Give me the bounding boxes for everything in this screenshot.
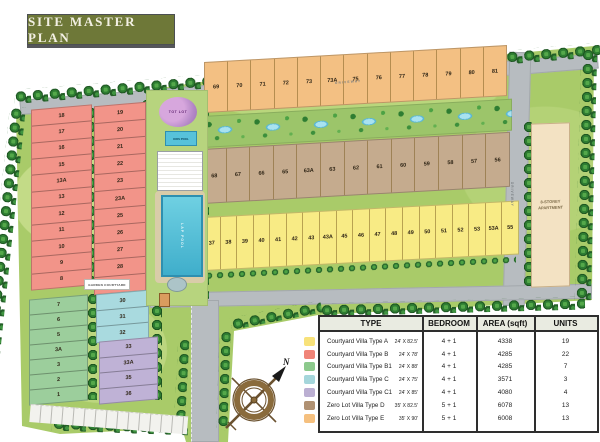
- bedroom-cell: 4 + 1: [422, 338, 476, 345]
- villa-plot-size: 35' X 82.5': [395, 403, 422, 409]
- villa-type-cell: Courtyard Villa Type B1 24' X 88': [320, 363, 422, 370]
- plot-cell: 57: [463, 134, 487, 188]
- plot-cell: 77: [391, 51, 414, 101]
- plot-cell: 61: [368, 139, 392, 193]
- plot-cell: 81: [484, 46, 506, 96]
- plot-cell: 65: [274, 145, 298, 199]
- villa-type-name: Courtyard Villa Type C: [327, 376, 389, 383]
- kids-pool-label: KIDS POOL: [173, 137, 188, 141]
- villa-type-name: Zero Lot Villa Type E: [327, 415, 384, 422]
- apartment-building: 8-STOREY APARTMENT: [531, 122, 570, 287]
- plot-column-courtyard-type-c: 303132: [96, 290, 149, 344]
- plot-cell: 72: [275, 58, 298, 108]
- villa-type-name: Courtyard Villa Type B1: [327, 363, 392, 370]
- villa-plot-size: 24' X 75': [399, 377, 422, 383]
- plot-cell: 63A: [297, 143, 321, 197]
- plot-cell: 47: [370, 208, 387, 261]
- plot-cell: 49: [403, 207, 420, 260]
- legend-swatch-slot: [303, 412, 316, 425]
- villa-plot-size: 24' X 88': [399, 364, 422, 370]
- plot-cell: 69: [205, 62, 228, 112]
- villa-plot-size: 24' X 78': [399, 352, 422, 358]
- villa-type-cell: Courtyard Villa Type A 24' X 82.5': [320, 338, 422, 345]
- plot-cell: 52: [453, 204, 470, 257]
- units-cell: 22: [534, 351, 597, 358]
- header-units: UNITS: [534, 317, 597, 330]
- plot-cell: 39: [237, 215, 254, 268]
- legend-row: Courtyard Villa Type B1 24' X 88' 4 + 1 …: [320, 361, 597, 374]
- legend-header-row: TYPE BEDROOM AREA (sqft) UNITS: [320, 317, 597, 332]
- plot-column-courtyard-type-b-left: 1817161513A1312111098: [31, 104, 92, 290]
- plot-cell: 78: [414, 50, 437, 100]
- plot-cell: 42: [287, 213, 304, 266]
- plot-cell: 40: [254, 214, 271, 267]
- plot-cell: 53A: [486, 202, 503, 255]
- plot-cell: 46: [353, 209, 370, 262]
- villa-type-cell: Courtyard Villa Type C1 24' X 85': [320, 389, 422, 396]
- units-cell: 19: [534, 338, 597, 345]
- table-divider: [422, 317, 424, 431]
- page-title-text: SITE MASTER PLAN: [28, 14, 174, 46]
- villa-type-name: Courtyard Villa Type B: [327, 351, 388, 358]
- color-swatch: [304, 337, 315, 346]
- compass-north-label: N: [282, 357, 290, 367]
- kids-pool: KIDS POOL: [165, 131, 197, 146]
- area-cell: 6078: [476, 402, 534, 409]
- units-cell: 7: [534, 363, 597, 370]
- legend-swatch-column: [303, 335, 316, 425]
- driveway-exit: [191, 300, 219, 442]
- table-divider: [534, 317, 536, 431]
- plot-cell: 43: [303, 212, 320, 265]
- lap-pool-label: LAP POOL: [143, 217, 221, 255]
- site-master-plan: SITE MASTER PLAN 697071727373A7576777879…: [0, 0, 600, 442]
- bedroom-cell: 5 + 1: [422, 402, 476, 409]
- legend-swatch-slot: [303, 335, 316, 348]
- bedroom-cell: 5 + 1: [422, 415, 476, 422]
- legend-body: Courtyard Villa Type A 24' X 82.5' 4 + 1…: [320, 332, 597, 431]
- plot-cell: 80: [461, 47, 484, 97]
- legend-swatch-slot: [303, 361, 316, 374]
- area-cell: 4285: [476, 351, 534, 358]
- color-swatch: [304, 362, 315, 371]
- villa-type-cell: Zero Lot Villa Type D 35' X 82.5': [320, 402, 422, 409]
- security-cabin: [159, 293, 170, 307]
- plot-cell: 63: [321, 142, 345, 196]
- plot-column-courtyard-type-b1: 7653A321: [29, 294, 88, 405]
- amenity-area: TOT LOT KIDS POOL LAP POOL: [146, 90, 208, 306]
- plot-cell: 71: [251, 59, 274, 109]
- villa-type-name: Zero Lot Villa Type D: [327, 402, 385, 409]
- legend-row: Courtyard Villa Type C1 24' X 85' 4 + 1 …: [320, 386, 597, 399]
- legend-swatch-slot: [303, 386, 316, 399]
- plot-cell: 48: [386, 208, 403, 261]
- header-area: AREA (sqft): [476, 317, 534, 330]
- plot-cell: 53: [469, 203, 486, 256]
- legend-row: Courtyard Villa Type A 24' X 82.5' 4 + 1…: [320, 335, 597, 348]
- plot-cell: 67: [227, 147, 251, 201]
- villa-plot-size: 24' X 82.5': [395, 339, 422, 345]
- plot-cell: 43A: [320, 211, 337, 264]
- header-bedroom: BEDROOM: [422, 317, 476, 330]
- bedroom-cell: 4 + 1: [422, 363, 476, 370]
- area-cell: 4080: [476, 389, 534, 396]
- plot-cell: 73: [298, 56, 321, 106]
- area-cell: 4338: [476, 338, 534, 345]
- legend-row: Zero Lot Villa Type D 35' X 82.5' 5 + 1 …: [320, 399, 597, 412]
- units-cell: 3: [534, 376, 597, 383]
- area-cell: 3571: [476, 376, 534, 383]
- plot-cell: 70: [228, 60, 251, 110]
- plot-cell: 38: [221, 216, 238, 269]
- plot-cell: 60: [392, 138, 416, 192]
- villa-type-cell: Courtyard Villa Type C 24' X 75': [320, 376, 422, 383]
- villa-plot-size: 35' X 90': [399, 416, 422, 422]
- legend-row: Zero Lot Villa Type E 35' X 90' 5 + 1 60…: [320, 412, 597, 425]
- plot-cell: 56: [486, 133, 509, 187]
- plot-cell: 76: [368, 53, 391, 103]
- bedroom-cell: 4 + 1: [422, 376, 476, 383]
- plot-cell: 55: [502, 201, 518, 254]
- plot-column-courtyard-type-c1: 3333A3536: [99, 336, 158, 404]
- legend-swatch-slot: [303, 348, 316, 361]
- plot-cell: 41: [270, 214, 287, 267]
- legend-row: Courtyard Villa Type B 24' X 78' 4 + 1 4…: [320, 348, 597, 361]
- plot-cell: 51: [436, 205, 453, 258]
- plot-cell: 62: [345, 141, 369, 195]
- header-type: TYPE: [320, 317, 422, 330]
- legend-swatch-slot: [303, 399, 316, 412]
- area-cell: 4285: [476, 363, 534, 370]
- villa-type-name: Courtyard Villa Type C1: [327, 389, 392, 396]
- driveway-label-vertical: DRIVEWAY: [510, 182, 514, 207]
- legend-swatch-slot: [303, 373, 316, 386]
- plot-cell: 58: [439, 135, 463, 189]
- legend-table: TYPE BEDROOM AREA (sqft) UNITS Courtyard…: [301, 315, 597, 437]
- color-swatch: [304, 388, 315, 397]
- color-swatch: [304, 414, 315, 423]
- plot-cell: 79: [437, 49, 460, 99]
- garden-courtyard-label: GARDEN COURTYARD: [84, 279, 130, 290]
- compass-graphic: N: [220, 354, 296, 438]
- color-swatch: [304, 350, 315, 359]
- color-swatch: [304, 401, 315, 410]
- legend-table-grid: TYPE BEDROOM AREA (sqft) UNITS Courtyard…: [318, 315, 599, 433]
- units-cell: 13: [534, 402, 597, 409]
- legend-row: Courtyard Villa Type C 24' X 75' 4 + 1 3…: [320, 373, 597, 386]
- villa-type-cell: Zero Lot Villa Type E 35' X 90': [320, 415, 422, 422]
- bedroom-cell: 4 + 1: [422, 351, 476, 358]
- units-cell: 4: [534, 389, 597, 396]
- units-cell: 13: [534, 415, 597, 422]
- apartment-label: 8-STOREY APARTMENT: [532, 199, 569, 211]
- plot-column-courtyard-type-b-right: 192021222323A2526272829: [94, 102, 146, 296]
- lap-pool: LAP POOL: [161, 195, 203, 277]
- compass-rose: N: [220, 354, 296, 438]
- clubhouse-building: [157, 151, 203, 191]
- tot-lot-label: TOT LOT: [169, 110, 187, 114]
- plot-cell: 66: [250, 146, 274, 200]
- table-divider: [476, 317, 478, 431]
- plot-cell: 50: [420, 206, 437, 259]
- plot-cell: 45: [337, 210, 354, 263]
- plot-cell: 59: [415, 137, 439, 191]
- bedroom-cell: 4 + 1: [422, 389, 476, 396]
- villa-plot-size: 24' X 85': [399, 390, 422, 396]
- tot-lot-playground: TOT LOT: [159, 97, 197, 127]
- color-swatch: [304, 375, 315, 384]
- area-cell: 6008: [476, 415, 534, 422]
- villa-type-cell: Courtyard Villa Type B 24' X 78': [320, 351, 422, 358]
- page-title: SITE MASTER PLAN: [27, 14, 175, 45]
- spa-feature: [167, 277, 187, 292]
- villa-type-name: Courtyard Villa Type A: [327, 338, 388, 345]
